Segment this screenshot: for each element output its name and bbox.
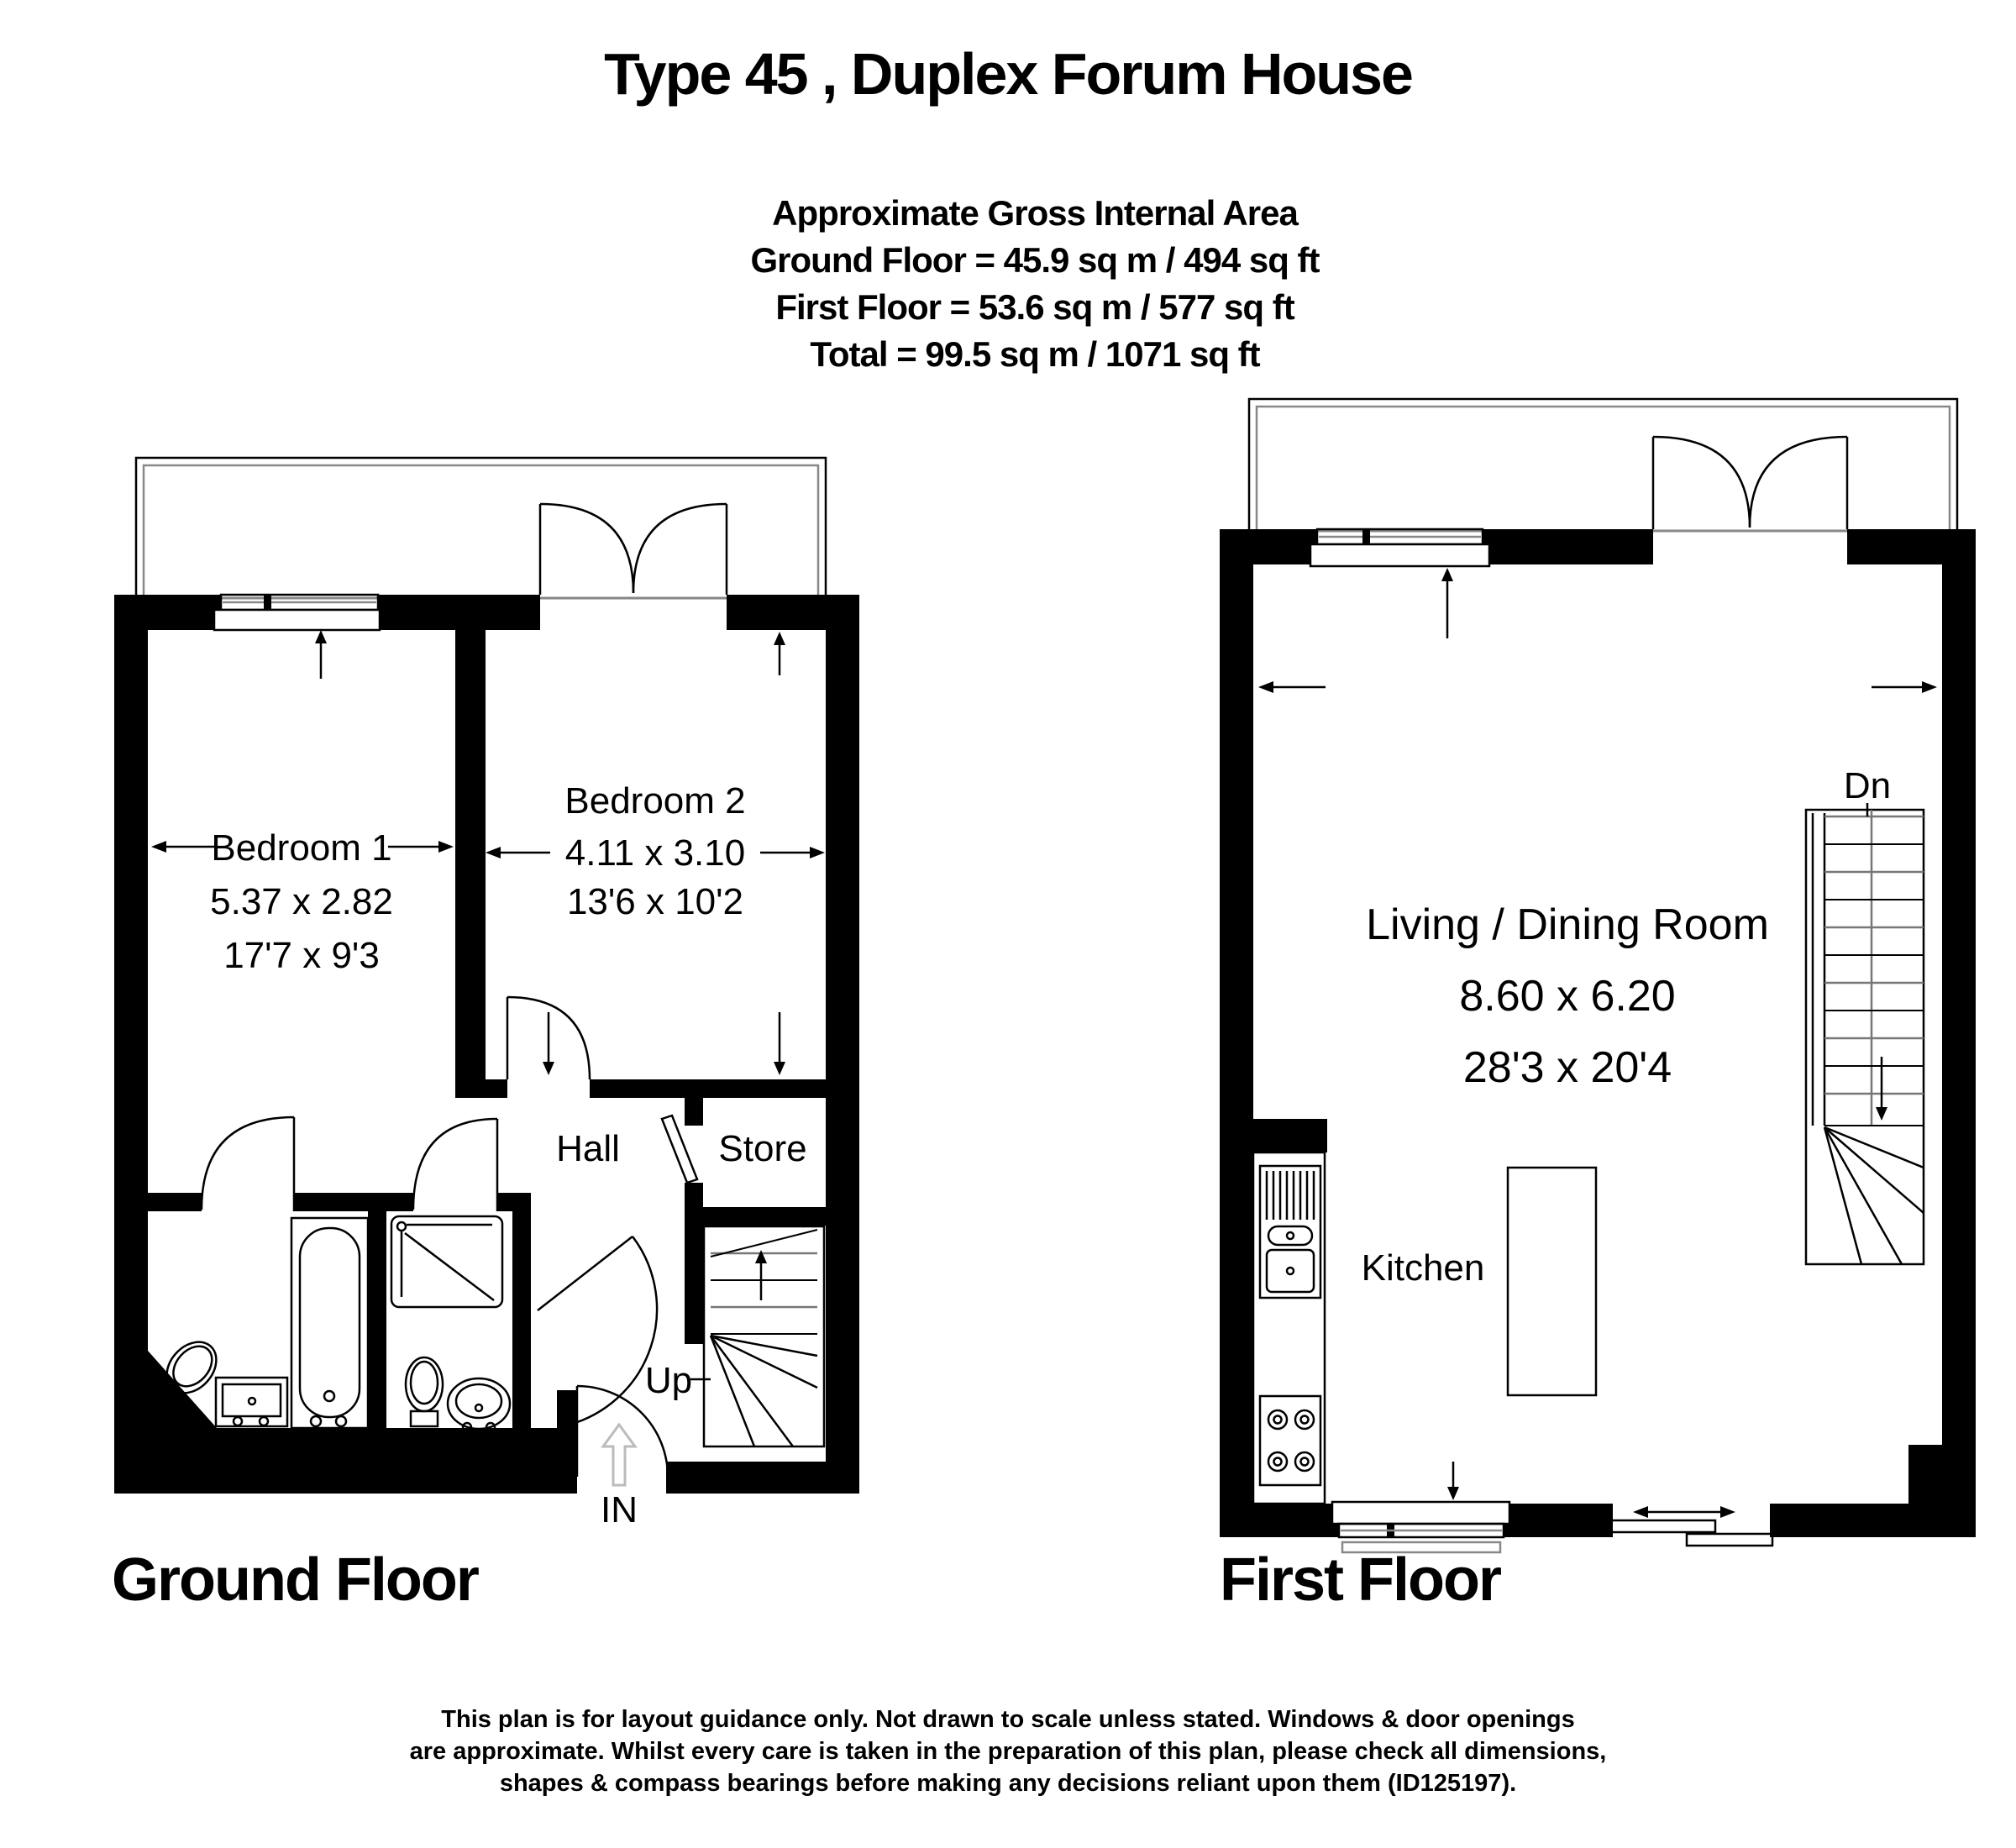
ground-floor-title: Ground Floor (112, 1546, 479, 1614)
floorplan-page: Type 45 , Duplex Forum House Approximate… (0, 0, 2016, 1848)
area-ground: Ground Floor = 45.9 sq m / 494 sq ft (751, 240, 1320, 280)
toilet-shower-room (406, 1357, 443, 1426)
bedroom1-imperial: 17'7 x 9'3 (223, 935, 380, 976)
entry-arrow-icon (603, 1425, 635, 1485)
shower-room-door (413, 1119, 497, 1211)
kitchen-label: Kitchen (1362, 1247, 1485, 1289)
living-imperial: 28'3 x 20'4 (1463, 1043, 1672, 1092)
vanity-basin (216, 1378, 287, 1426)
kitchen-sink (1260, 1166, 1320, 1298)
bedroom2-metric: 4.11 x 3.10 (565, 832, 745, 874)
disclaimer-line3: shapes & compass bearings before making … (500, 1770, 1516, 1797)
disclaimer-line1: This plan is for layout guidance only. N… (441, 1706, 1574, 1733)
area-heading: Approximate Gross Internal Area (772, 193, 1299, 233)
living-metric: 8.60 x 6.20 (1459, 972, 1675, 1021)
disclaimer-line2: are approximate. Whilst every care is ta… (410, 1738, 1607, 1765)
ground-balcony (136, 458, 826, 598)
bedroom2-door-arrow (543, 1012, 554, 1075)
living-balcony-doors (1653, 437, 1847, 529)
bedroom2-label: Bedroom 2 (564, 780, 745, 822)
first-staircase (1806, 810, 1924, 1264)
ground-floor-plan: Bedroom 1 5.37 x 2.82 17'7 x 9'3 Bedroom… (112, 458, 859, 1614)
area-total: Total = 99.5 sq m / 1071 sq ft (810, 334, 1260, 374)
kitchen-window (1332, 1462, 1509, 1552)
round-basin (448, 1378, 510, 1431)
bathroom-door (202, 1117, 294, 1211)
floorplan-drawing: Type 45 , Duplex Forum House Approximate… (0, 0, 2016, 1848)
bedroom1-label: Bedroom 1 (211, 827, 391, 869)
stairs-up-label: Up (645, 1360, 692, 1401)
hall-lobby-door (538, 1236, 657, 1425)
sliding-door (1611, 1506, 1772, 1546)
ground-walls (114, 595, 859, 1494)
kitchen-hob (1260, 1396, 1320, 1485)
bedroom2-balcony-doors (540, 504, 785, 675)
stairs-dn-label: Dn (1844, 765, 1891, 806)
store-window-arrow (774, 1012, 785, 1075)
bathtub (291, 1218, 368, 1428)
first-floor-title: First Floor (1220, 1546, 1501, 1614)
area-first: First Floor = 53.6 sq m / 577 sq ft (775, 287, 1294, 327)
bedroom1-window (214, 595, 380, 679)
bedroom2-imperial: 13'6 x 10'2 (567, 881, 743, 922)
kitchen-island (1508, 1168, 1596, 1395)
ground-staircase (704, 1226, 824, 1446)
shower (391, 1216, 502, 1307)
entrance-label: IN (601, 1489, 638, 1530)
bedroom1-metric: 5.37 x 2.82 (210, 881, 393, 922)
first-balcony (1249, 399, 1957, 531)
first-floor-plan: Living / Dining Room 8.60 x 6.20 28'3 x … (1220, 399, 1976, 1614)
page-title: Type 45 , Duplex Forum House (604, 41, 1412, 107)
living-window (1310, 529, 1489, 638)
first-walls (1220, 529, 1976, 1537)
store-label: Store (718, 1128, 806, 1169)
hall-label: Hall (556, 1128, 620, 1169)
living-label: Living / Dining Room (1366, 900, 1769, 949)
living-dim-arrows (1258, 681, 1937, 693)
